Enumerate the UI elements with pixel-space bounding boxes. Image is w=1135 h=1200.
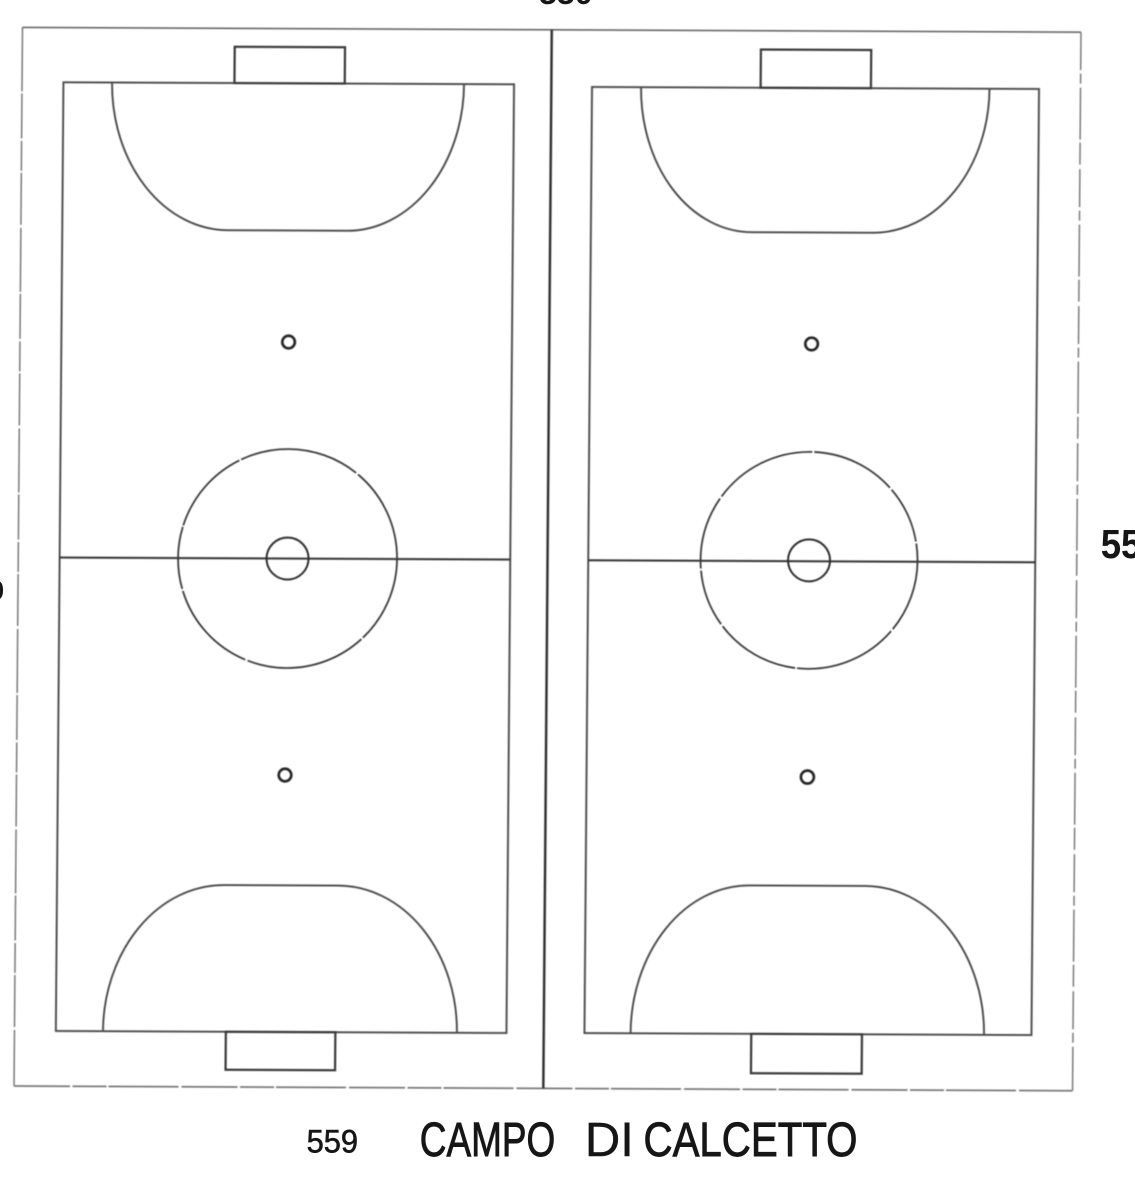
svg-text:559: 559 bbox=[307, 1123, 359, 1159]
svg-text:CAMPO: CAMPO bbox=[420, 1113, 556, 1167]
svg-text:CALCETTO: CALCETTO bbox=[644, 1113, 858, 1167]
svg-text:0: 0 bbox=[0, 576, 4, 606]
svg-text:550: 550 bbox=[1101, 521, 1135, 567]
svg-text:DI: DI bbox=[585, 1113, 634, 1167]
svg-text:550: 550 bbox=[539, 0, 593, 11]
